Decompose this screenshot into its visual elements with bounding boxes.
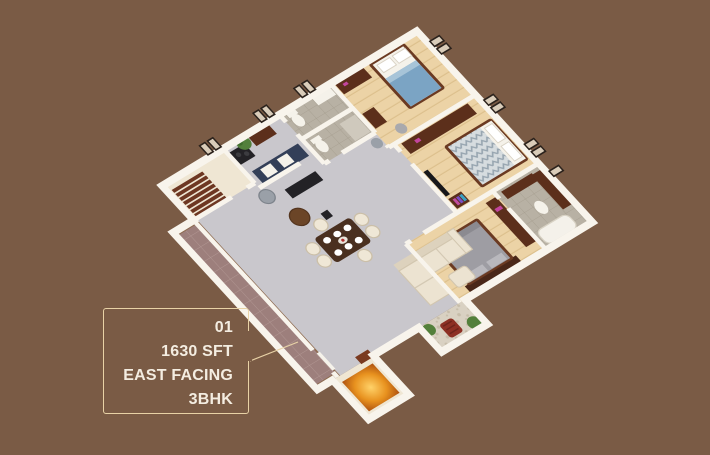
unit-info-card: 01 1630 SFT EAST FACING 3BHK: [103, 308, 249, 414]
card-border-gap: [247, 331, 252, 361]
unit-area: 1630 SFT: [104, 340, 233, 364]
unit-facing: EAST FACING: [104, 364, 233, 388]
poster: 01 1630 SFT EAST FACING 3BHK: [0, 0, 710, 455]
unit-number: 01: [104, 316, 233, 340]
page: { "card": { "unit_number": "01", "area":…: [0, 0, 710, 455]
unit-type: 3BHK: [104, 388, 233, 412]
